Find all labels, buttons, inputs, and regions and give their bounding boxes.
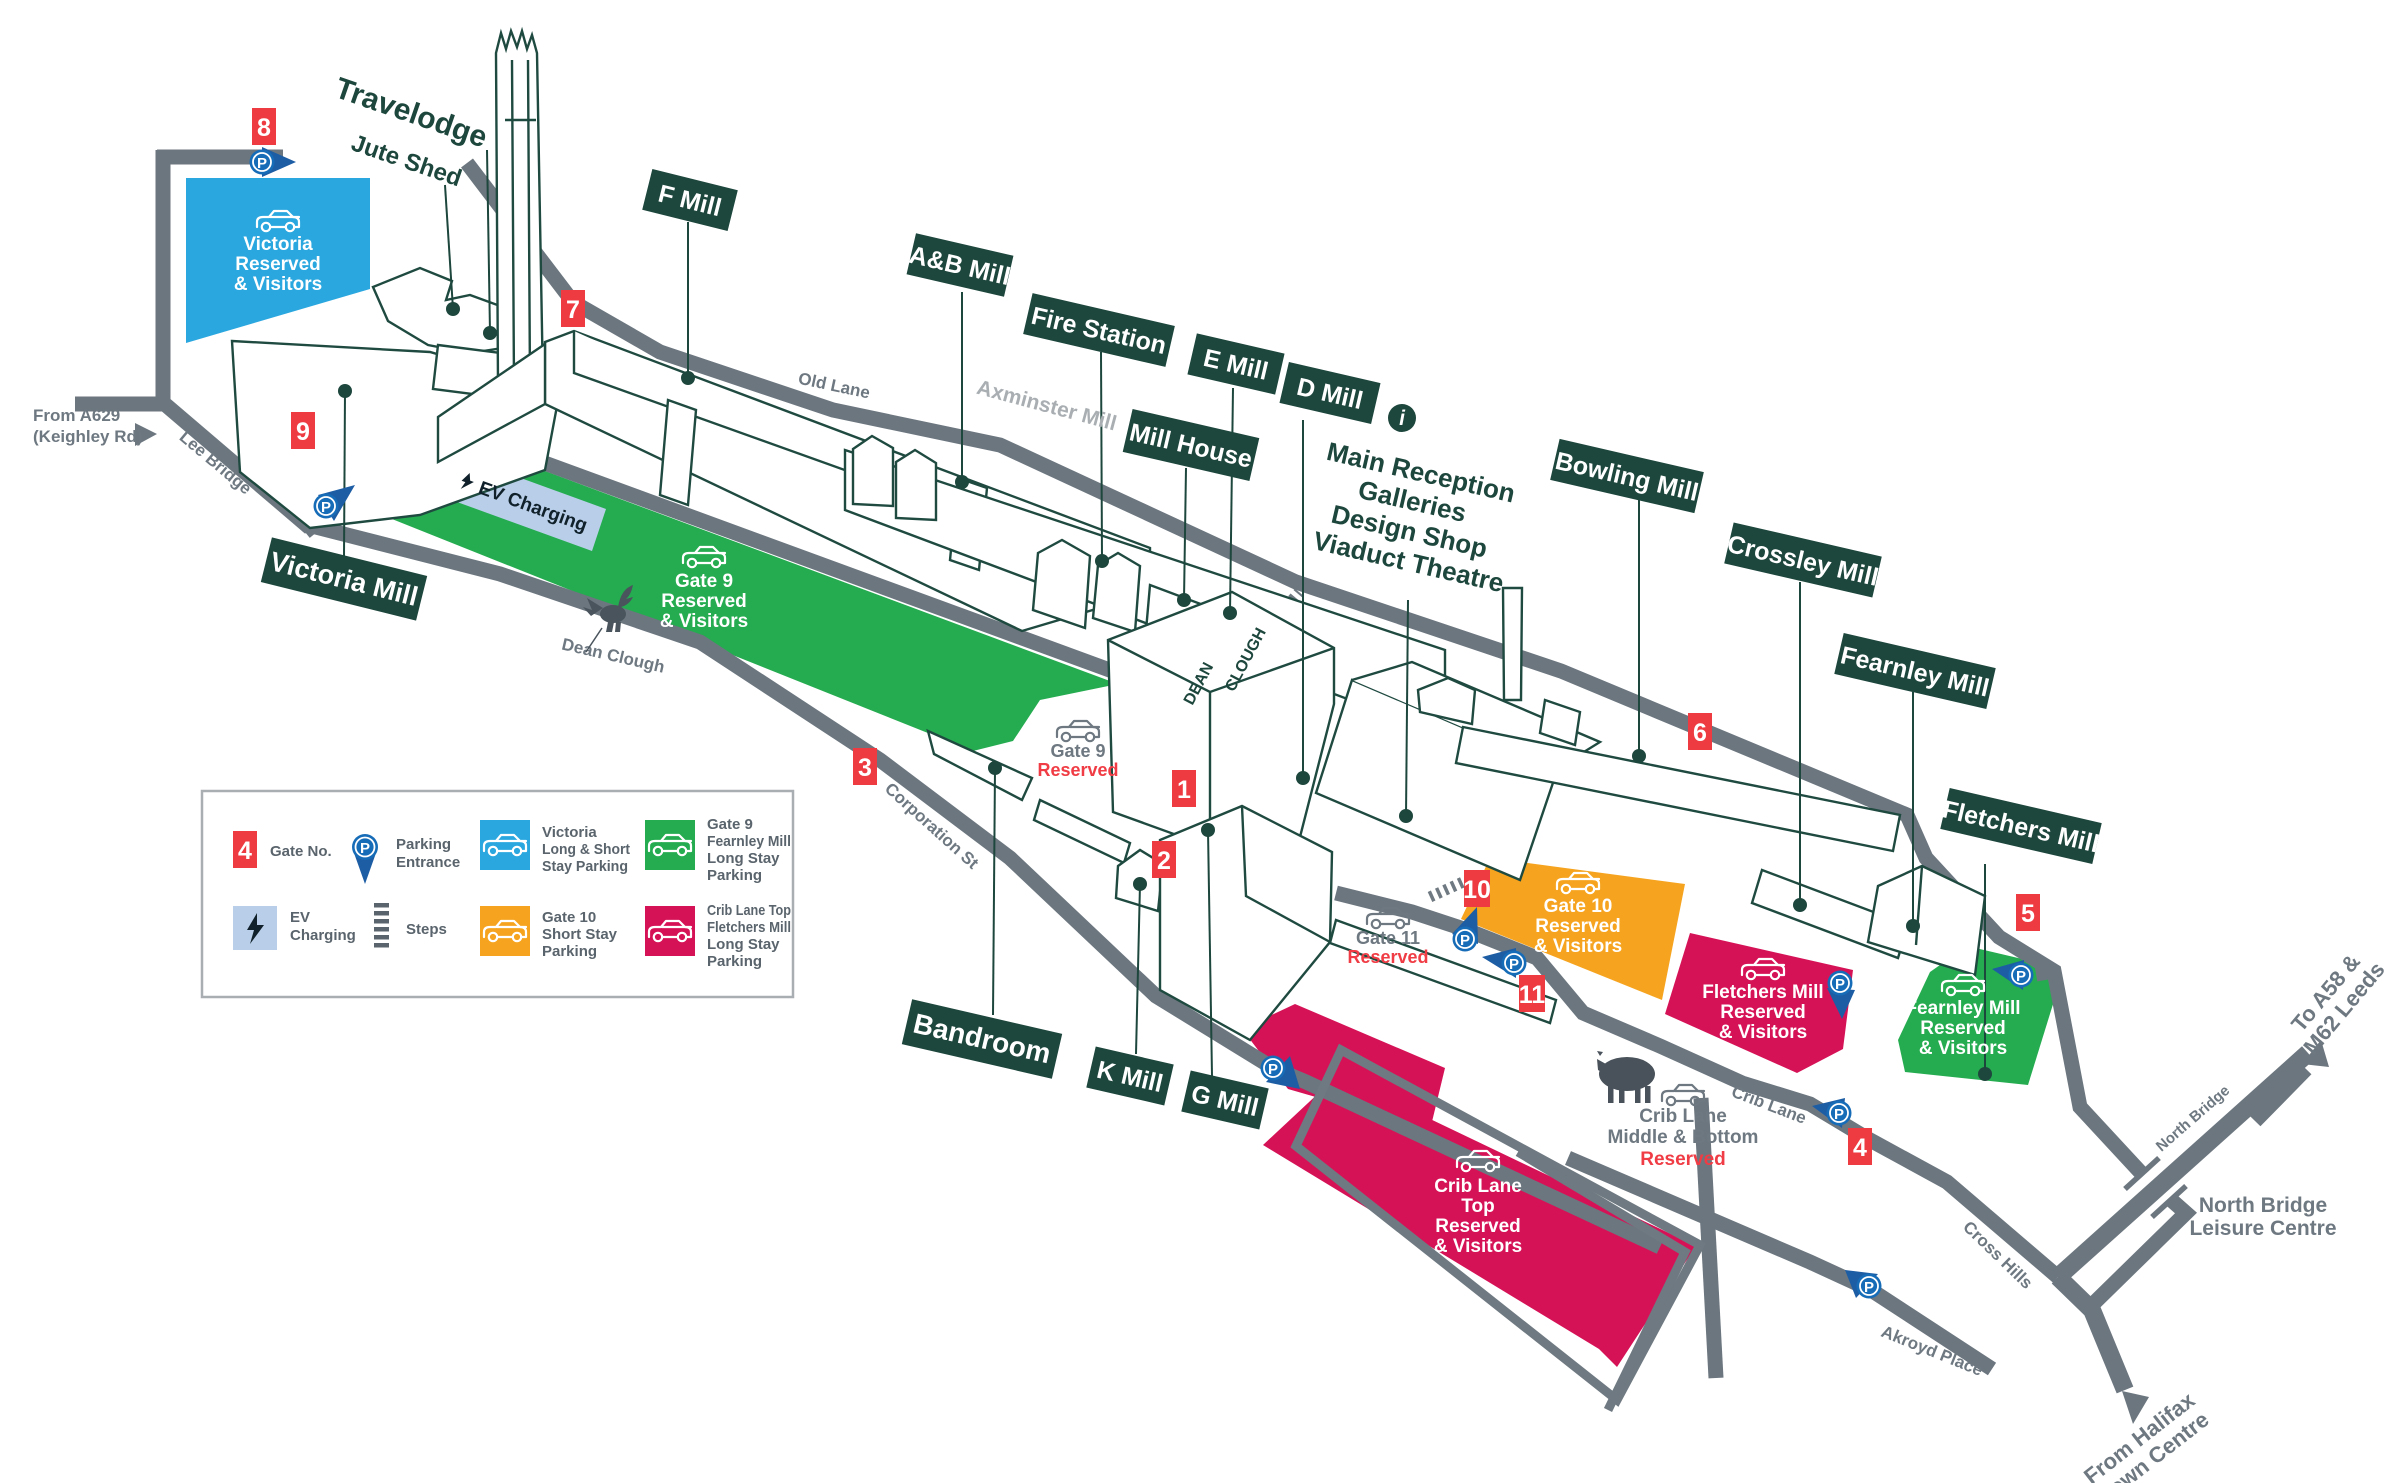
svg-text:Long Stay: Long Stay [707, 936, 780, 953]
svg-text:Gate 10: Gate 10 [542, 909, 596, 926]
svg-text:Reserved: Reserved [1640, 1149, 1726, 1170]
svg-text:Gate 9: Gate 9 [1050, 741, 1105, 761]
svg-text:Reserved: Reserved [1435, 1216, 1521, 1237]
svg-text:Parking: Parking [707, 867, 762, 884]
svg-text:Fearnley Mill: Fearnley Mill [1905, 998, 2020, 1019]
svg-text:P: P [360, 840, 370, 857]
svg-text:Fletchers Mill: Fletchers Mill [707, 919, 791, 936]
svg-text:P: P [1864, 1279, 1874, 1296]
svg-text:Entrance: Entrance [396, 854, 460, 871]
svg-text:Crib Lane Top: Crib Lane Top [707, 902, 791, 919]
svg-text:Parking: Parking [396, 836, 451, 853]
svg-text:Parking: Parking [707, 953, 762, 970]
svg-text:Crib Lane: Crib Lane [1434, 1176, 1522, 1197]
svg-text:& Visitors: & Visitors [1919, 1038, 2007, 1059]
svg-text:Victoria: Victoria [243, 234, 313, 255]
svg-text:Gate 9: Gate 9 [707, 816, 753, 833]
svg-text:11: 11 [1519, 981, 1546, 1009]
svg-text:1: 1 [1177, 776, 1191, 804]
svg-text:Fearnley Mill: Fearnley Mill [707, 833, 791, 850]
svg-text:P: P [2016, 968, 2026, 985]
svg-text:3: 3 [858, 754, 872, 782]
svg-text:Reserved: Reserved [1920, 1018, 2006, 1039]
svg-text:P: P [1460, 932, 1470, 949]
svg-text:Crib Lane: Crib Lane [1639, 1106, 1727, 1127]
svg-text:Long & Short: Long & Short [542, 841, 630, 858]
svg-text:8: 8 [257, 114, 271, 142]
svg-text:P: P [1268, 1061, 1278, 1078]
svg-text:2: 2 [1157, 847, 1171, 875]
svg-text:Gate 11: Gate 11 [1356, 928, 1420, 948]
svg-text:(Keighley Rd): (Keighley Rd) [33, 427, 143, 446]
svg-text:& Visitors: & Visitors [660, 611, 748, 632]
svg-text:& Visitors: & Visitors [1719, 1022, 1807, 1043]
svg-text:P: P [1835, 976, 1845, 993]
svg-text:Reserved: Reserved [1037, 760, 1118, 780]
svg-text:10: 10 [1463, 876, 1491, 904]
svg-text:4: 4 [1853, 1134, 1867, 1162]
svg-text:Short Stay: Short Stay [542, 926, 618, 943]
svg-text:North Bridge: North Bridge [2199, 1194, 2327, 1217]
svg-text:& Visitors: & Visitors [234, 274, 322, 295]
svg-text:Charging: Charging [290, 927, 356, 944]
svg-text:Reserved: Reserved [1720, 1002, 1806, 1023]
svg-text:P: P [257, 155, 267, 172]
svg-text:9: 9 [296, 418, 310, 446]
svg-text:Gate No.: Gate No. [270, 843, 332, 860]
svg-text:Gate 10: Gate 10 [1544, 896, 1613, 917]
svg-text:Reserved: Reserved [1347, 947, 1428, 967]
svg-text:Gate 9: Gate 9 [675, 571, 733, 592]
svg-text:Fletchers Mill: Fletchers Mill [1702, 982, 1823, 1003]
svg-text:Reserved: Reserved [235, 254, 321, 275]
svg-text:P: P [1509, 956, 1519, 973]
svg-text:P: P [1834, 1106, 1844, 1123]
svg-text:EV: EV [290, 909, 310, 926]
svg-text:Middle & Bottom: Middle & Bottom [1608, 1127, 1759, 1148]
svg-text:Leisure Centre: Leisure Centre [2189, 1217, 2336, 1240]
svg-text:Reserved: Reserved [661, 591, 747, 612]
svg-text:7: 7 [566, 296, 580, 324]
svg-text:Long Stay: Long Stay [707, 850, 780, 867]
svg-text:Steps: Steps [406, 921, 447, 938]
svg-text:5: 5 [2021, 900, 2035, 928]
svg-text:Victoria: Victoria [542, 824, 597, 841]
svg-text:Top: Top [1461, 1196, 1494, 1217]
svg-text:4: 4 [238, 837, 252, 865]
svg-text:6: 6 [1693, 719, 1707, 747]
svg-text:From A629: From A629 [33, 406, 120, 425]
svg-text:Reserved: Reserved [1535, 916, 1621, 937]
svg-text:Stay Parking: Stay Parking [542, 858, 628, 875]
svg-text:P: P [321, 499, 331, 516]
svg-text:Parking: Parking [542, 943, 597, 960]
svg-text:& Visitors: & Visitors [1434, 1236, 1522, 1257]
svg-text:& Visitors: & Visitors [1534, 936, 1622, 957]
